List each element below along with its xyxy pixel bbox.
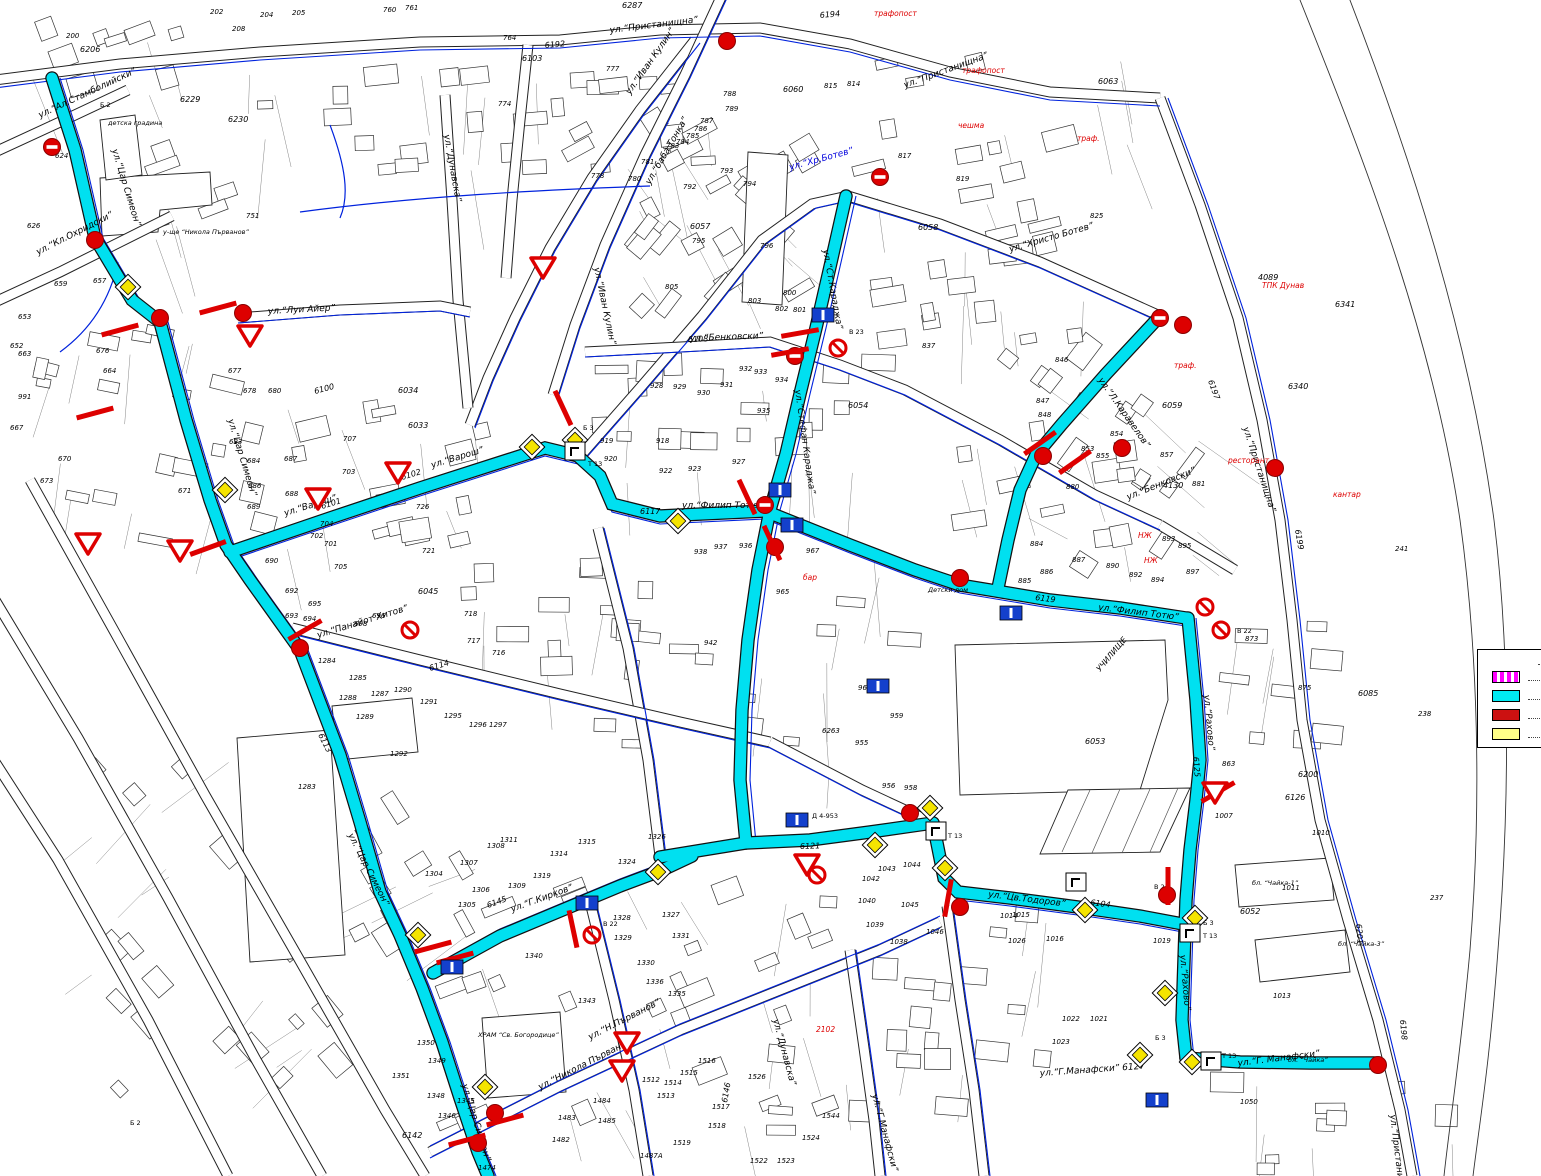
- parcel-number-label: 774: [498, 100, 511, 108]
- building-footprint: [98, 379, 120, 394]
- building-footprint: [755, 952, 780, 971]
- building-footprint: [974, 300, 996, 323]
- parcel-number-label: 794: [743, 180, 756, 188]
- poi-label: бл. “Чайка”: [1288, 1056, 1328, 1064]
- building-footprint: [381, 791, 410, 825]
- building-footprint: [488, 974, 505, 991]
- building-footprint: [1265, 1155, 1279, 1165]
- building-footprint: [935, 1096, 969, 1116]
- legend-item: [1492, 705, 1541, 724]
- sign-code-label: Т 13: [1221, 1052, 1236, 1060]
- building-footprint: [1041, 124, 1078, 152]
- legend-label-dots: [1528, 692, 1541, 700]
- stop-sign-icon: [1114, 440, 1131, 457]
- building-footprint: [1311, 723, 1343, 745]
- parcel-number-label: 934: [775, 376, 788, 384]
- sign-code-label: Т 13: [947, 832, 962, 840]
- parcel-number-label: 778: [591, 172, 605, 180]
- sign-code-label: В 22: [603, 920, 618, 928]
- legend-item: [1492, 667, 1541, 686]
- parcel-number-label: 1484: [593, 1097, 611, 1105]
- sign-code-label: Б 3: [583, 424, 594, 432]
- road-code-label: 4130: [1163, 481, 1183, 490]
- parcel-number-label: 696: [372, 612, 386, 620]
- road-code-label: 6230: [228, 115, 248, 124]
- crossing-sign-icon: [1180, 924, 1200, 942]
- chaika-3-footprint: [1255, 930, 1350, 982]
- road-code-label: 6198: [1398, 1019, 1409, 1040]
- parcel-number-label: 692: [285, 587, 299, 595]
- parcel-number-label: 1019: [1153, 937, 1171, 945]
- parcel-number-label: 796: [760, 242, 774, 250]
- parcel-number-label: 751: [246, 212, 259, 220]
- parcel-number-label: 1324: [618, 858, 636, 866]
- no-entry-sign-icon: [757, 497, 774, 514]
- parcel-number-label: 1043: [878, 865, 896, 873]
- legend-swatch-magenta-dashed: [1492, 671, 1520, 683]
- sign-code-label: Б 2: [130, 1119, 141, 1127]
- building-footprint: [595, 365, 628, 374]
- parcel-number-label: 846: [1055, 356, 1069, 364]
- parcel-number-label: 793: [720, 167, 733, 175]
- parcel-number-label: 965: [776, 588, 790, 596]
- parcel-number-label: 200: [66, 32, 80, 40]
- parcel-number-label: 1336: [646, 978, 664, 986]
- road-code-label: 6060: [783, 85, 803, 94]
- stop-sign-icon: [292, 640, 309, 657]
- poi-label: детска градина: [107, 119, 162, 127]
- parcel-number-label: 919: [600, 437, 614, 445]
- parcel-number-label: 801: [793, 306, 806, 314]
- parcel-number-label: 847: [1036, 397, 1050, 405]
- road-code-label: 6194: [819, 9, 840, 20]
- building-footprint: [296, 415, 331, 442]
- parcel-number-label: 1021: [1090, 1015, 1108, 1023]
- building-footprint: [928, 260, 947, 280]
- parcel-number-label: 703: [342, 468, 355, 476]
- building-footprint: [540, 656, 572, 676]
- parcel-number-label: 1327: [662, 911, 680, 919]
- parcel-number-label: 1351: [392, 1072, 410, 1080]
- building-footprint: [395, 158, 419, 173]
- building-footprint: [93, 489, 118, 505]
- parcel-number-label: 1022: [1062, 1015, 1080, 1023]
- building-footprint: [924, 1032, 939, 1050]
- poi-label: чешма: [958, 121, 985, 130]
- building-footprint: [372, 526, 390, 539]
- building-footprint: [737, 428, 750, 442]
- building-footprint: [1249, 732, 1265, 745]
- road-code-label: 6034: [398, 386, 418, 395]
- building-footprint: [836, 596, 865, 608]
- parcel-number-label: 1522: [750, 1157, 768, 1165]
- parcel-number-label: 671: [178, 487, 191, 495]
- no-entry-sign-icon: [44, 139, 61, 156]
- parcel-number-label: 930: [697, 389, 711, 397]
- parcel-number-label: 780: [628, 175, 642, 183]
- no-entry-sign-icon: [1152, 310, 1169, 327]
- parcel-number-label: 819: [956, 175, 970, 183]
- poi-label: НЖ: [1144, 556, 1159, 565]
- parcel-number-label: 802: [775, 305, 789, 313]
- stop-sign-icon: [152, 310, 169, 327]
- stop-sign-icon: [952, 570, 969, 587]
- building-footprint: [399, 517, 432, 543]
- large-hall-footprint: [237, 730, 345, 962]
- no-stopping-sign-icon: [1197, 599, 1213, 615]
- parcel-number-label: 795: [692, 237, 706, 245]
- one-way-sign-icon: [769, 483, 791, 497]
- parcel-number-label: 1487А: [640, 1152, 663, 1160]
- parcel-number-label: 1345: [457, 1097, 475, 1105]
- building-footprint: [1033, 1050, 1051, 1068]
- legend-swatch-cyan: [1492, 690, 1520, 702]
- parcel-number-label: 884: [1030, 540, 1043, 548]
- building-footprint: [706, 175, 731, 194]
- road-code-label: 6117: [640, 507, 661, 516]
- parcel-number-label: 693: [285, 612, 298, 620]
- building-footprint: [787, 913, 811, 939]
- legend-swatch-red: [1492, 709, 1520, 721]
- building-footprint: [1257, 1163, 1274, 1175]
- building-footprint: [955, 145, 983, 164]
- parcel-number-label: 892: [1129, 571, 1143, 579]
- parcel-number-label: 935: [757, 407, 771, 415]
- building-footprint: [349, 923, 369, 942]
- parcel-number-label: 1007: [1215, 812, 1233, 820]
- building-footprint: [638, 581, 653, 599]
- parcel-number-label: 817: [898, 152, 912, 160]
- stop-sign-icon: [1035, 448, 1052, 465]
- parcel-number-label: 955: [855, 739, 869, 747]
- road-code-label: 6045: [418, 587, 438, 596]
- parcel-number-label: 678: [243, 387, 257, 395]
- parcel-number-label: 777: [606, 65, 620, 73]
- building-footprint: [879, 119, 897, 139]
- priority-road-sign-icon: [1152, 980, 1177, 1005]
- parcel-number-label: 1311: [500, 836, 518, 844]
- parcel-number-label: 825: [1090, 212, 1104, 220]
- parcel-number-label: 705: [334, 563, 348, 571]
- parcel-number-label: 814: [847, 80, 860, 88]
- road-code-label: 6057: [690, 222, 711, 231]
- building-footprint: [1219, 672, 1250, 685]
- road-code-label: 6108: [688, 334, 709, 344]
- parcel-number-label: 1519: [673, 1139, 691, 1147]
- building-footprint: [947, 276, 975, 295]
- building-footprint: [211, 443, 226, 457]
- legend-label-dots: [1528, 730, 1541, 738]
- road-code-label: 6200: [1298, 770, 1318, 779]
- building-footprint: [289, 1014, 305, 1030]
- parcel-number-label: 707: [343, 435, 357, 443]
- building-footprint: [460, 66, 490, 85]
- building-footprint: [241, 422, 263, 444]
- poi-label: бар: [803, 573, 817, 582]
- one-way-sign-icon: [441, 960, 463, 974]
- building-footprint: [1109, 523, 1132, 547]
- parcel-number-label: 890: [1106, 562, 1120, 570]
- poi-label: Детски дом: [927, 586, 968, 594]
- parcel-number-label: 761: [405, 4, 418, 12]
- stop-sign-icon: [902, 805, 919, 822]
- building-footprint: [691, 433, 718, 450]
- parcel-number-label: 1513: [657, 1092, 675, 1100]
- road-code-label: 6054: [848, 401, 868, 410]
- building-footprint: [1307, 621, 1327, 632]
- one-way-sign-icon: [576, 896, 598, 910]
- building-footprint: [957, 445, 973, 462]
- poi-label: траф.: [1174, 361, 1197, 370]
- parcel-number-label: 1306: [472, 886, 490, 894]
- sign-code-label: Т 13: [587, 460, 602, 468]
- building-footprint: [909, 1006, 932, 1029]
- parcel-number-label: 1016: [1046, 935, 1064, 943]
- parcel-number-label: 652: [10, 342, 24, 350]
- city-map-canvas[interactable]: ул.“Ал.Стамболийски”ул.“Кл.Охридски”ул.“…: [0, 0, 1541, 1176]
- building-footprint: [539, 597, 570, 612]
- building-footprint: [333, 86, 348, 104]
- parcel-number-label: 959: [890, 712, 904, 720]
- parcel-number-label: 786: [694, 125, 708, 133]
- stop-sign-icon: [952, 899, 969, 916]
- parcel-number-label: 787: [700, 117, 714, 125]
- road-code-label: 6341: [1335, 300, 1355, 309]
- building-footprint: [920, 302, 935, 321]
- parcel-number-label: 1315: [578, 838, 596, 846]
- water-lines-layer: [0, 0, 1420, 1176]
- parcel-number-label: 683: [229, 438, 242, 446]
- parcel-number-label: 855: [1096, 452, 1110, 460]
- one-way-sign-icon: [1000, 606, 1022, 620]
- parcel-number-label: 659: [54, 280, 68, 288]
- building-footprint: [1435, 1104, 1458, 1126]
- parcel-number-label: 690: [265, 557, 279, 565]
- parcel-number-label: 1523: [777, 1157, 795, 1165]
- building-footprint: [861, 354, 895, 371]
- parcel-number-label: 1544: [822, 1112, 840, 1120]
- building-footprint: [669, 644, 698, 654]
- parcel-number-label: 680: [268, 387, 282, 395]
- parcel-number-label: 1304: [425, 870, 443, 878]
- building-footprint: [35, 16, 58, 41]
- building-footprint: [124, 21, 155, 45]
- building-footprint: [1008, 1004, 1026, 1014]
- building-footprint: [559, 991, 577, 1012]
- road-code-label: 6126: [1285, 793, 1305, 802]
- parcel-number-label: 1038: [890, 938, 908, 946]
- parcel-number-label: 1474: [478, 1164, 496, 1172]
- street-name-label: ул.“Дунавска”: [441, 133, 463, 203]
- one-way-sign-icon: [812, 308, 834, 322]
- building-footprint: [768, 1106, 792, 1116]
- parcel-number-label: 1289: [356, 713, 374, 721]
- signpost-bar-icon: [567, 910, 580, 948]
- give-way-sign-icon: [76, 534, 100, 554]
- signpost-bar-icon: [1166, 867, 1171, 905]
- parcel-number-label: 718: [464, 610, 478, 618]
- parcel-number-label: 238: [1418, 710, 1432, 718]
- parcel-number-label: 815: [824, 82, 838, 90]
- poi-label: НЖ: [1138, 531, 1153, 540]
- parcel-number-label: 956: [882, 782, 896, 790]
- parcel-number-label: 848: [1038, 411, 1052, 419]
- parcel-number-label: 931: [720, 381, 733, 389]
- parcel-number-label: 1292: [390, 750, 408, 758]
- no-entry-sign-icon: [872, 169, 889, 186]
- parcel-number-label: 686: [248, 482, 262, 490]
- sign-code-label: Б 3: [1155, 1034, 1166, 1042]
- poi-label: трафопост: [874, 9, 917, 18]
- one-way-sign-icon: [1146, 1093, 1168, 1107]
- building-footprint: [684, 940, 701, 955]
- parcel-number-label: 716: [492, 649, 506, 657]
- parcel-number-label: 927: [732, 458, 746, 466]
- parcel-number-label: 1295: [444, 712, 462, 720]
- road-code-label: 6197: [1206, 379, 1222, 402]
- building-footprint: [439, 68, 459, 87]
- parcel-number-label: 1015: [1012, 911, 1030, 919]
- poi-label: бл. “Чайка-1”: [1252, 879, 1299, 887]
- crossing-sign-icon: [926, 822, 946, 840]
- building-footprint: [467, 111, 483, 132]
- parcel-number-label: 880: [1066, 483, 1080, 491]
- parcel-number-label: 1039: [866, 921, 884, 929]
- parcel-number-label: 717: [467, 637, 481, 645]
- parcel-number-label: 1343: [578, 997, 596, 1005]
- parcel-number-label: 1517: [712, 1103, 730, 1111]
- building-footprint: [474, 563, 494, 582]
- building-footprint: [1210, 1072, 1244, 1092]
- building-footprint: [355, 136, 374, 151]
- parcel-number-label: 895: [1178, 542, 1192, 550]
- parcel-number-label: 942: [704, 639, 718, 647]
- building-footprint: [887, 631, 921, 647]
- parcel-number-label: 626: [27, 222, 41, 230]
- building-footprint: [454, 910, 475, 937]
- parcel-number-label: 923: [688, 465, 701, 473]
- parcel-number-label: 726: [416, 503, 430, 511]
- road-code-label: 6192: [544, 39, 565, 50]
- parcel-number-label: 886: [1040, 568, 1054, 576]
- building-footprint: [1000, 161, 1025, 183]
- parcel-number-label: 760: [383, 6, 397, 14]
- parcel-number-label: 873: [1245, 635, 1258, 643]
- give-way-sign-icon: [238, 326, 262, 346]
- building-footprint: [817, 624, 836, 636]
- building-footprint: [997, 348, 1018, 369]
- crossing-sign-icon: [1066, 873, 1086, 891]
- building-footprint: [691, 156, 716, 166]
- road-code-label: 6121: [800, 841, 821, 851]
- school-2-footprint: [955, 640, 1168, 795]
- road-code-label: 6199: [1293, 529, 1305, 551]
- building-footprint: [808, 929, 833, 948]
- parcel-number-label: 938: [694, 548, 708, 556]
- parcel-number-label: 1331: [672, 932, 690, 940]
- sign-code-label: Д 4-953: [812, 812, 838, 820]
- parcel-number-label: 764: [503, 34, 516, 42]
- parcel-number-label: 1040: [858, 897, 876, 905]
- parcel-number-label: 1326: [648, 833, 666, 841]
- road-code-label: 6052: [1240, 907, 1260, 916]
- parcel-number-label: 800: [783, 289, 797, 297]
- stop-sign-icon: [1370, 1057, 1387, 1074]
- poi-label: траф.: [1077, 134, 1100, 143]
- building-footprint: [462, 971, 486, 993]
- building-footprint: [1310, 649, 1343, 671]
- building-footprint: [1067, 328, 1083, 344]
- parcel-number-label: 1514: [664, 1079, 682, 1087]
- building-footprint: [594, 718, 616, 732]
- parcel-number-label: 6263: [822, 727, 840, 735]
- road-code-label: 6059: [1162, 401, 1182, 410]
- parcel-number-label: 1516: [698, 1057, 716, 1065]
- parcel-number-label: 936: [739, 542, 753, 550]
- parcel-number-label: 875: [1298, 684, 1312, 692]
- road-code-label: 6053: [1085, 737, 1105, 746]
- parcel-number-label: 928: [650, 382, 664, 390]
- building-footprint: [33, 357, 49, 379]
- parcel-number-label: 1330: [637, 959, 655, 967]
- parcel-number-label: 854: [1110, 430, 1123, 438]
- parcel-number-label: 1349: [428, 1057, 446, 1065]
- parcel-number-label: 881: [1192, 480, 1205, 488]
- signpost-bar-icon: [553, 390, 574, 427]
- sign-code-label: В 23: [849, 328, 864, 336]
- parcel-number-label: 1013: [1273, 992, 1291, 1000]
- poi-label: 2102: [816, 1025, 835, 1034]
- parcel-number-label: 1483: [558, 1114, 576, 1122]
- parcel-number-label: 863: [1222, 760, 1235, 768]
- road-code-label: 6229: [180, 95, 200, 104]
- one-way-sign-icon: [781, 518, 803, 532]
- parcel-number-label: 1485: [598, 1117, 616, 1125]
- building-footprint: [456, 495, 472, 515]
- parcel-number-label: 1305: [458, 901, 476, 909]
- building-footprint: [958, 184, 993, 204]
- road-code-label: 6142: [402, 1131, 422, 1140]
- building-footprint: [142, 966, 174, 999]
- parcel-number-label: 1010: [1312, 829, 1330, 837]
- parcel-number-label: 1284: [318, 657, 336, 665]
- road-code-label: 6058: [918, 223, 938, 232]
- parcel-number-label: 1518: [708, 1122, 726, 1130]
- road-code-label: 6085: [1358, 689, 1378, 698]
- parcel-number-label: 937: [714, 543, 728, 551]
- parcel-number-label: 792: [683, 183, 697, 191]
- map-viewport[interactable]: ул.“Ал.Стамболийски”ул.“Кл.Охридски”ул.“…: [0, 0, 1541, 1176]
- parcel-number-label: 788: [723, 90, 737, 98]
- parcel-number-label: 677: [228, 367, 242, 375]
- poi-label: ТПК Дунав: [1262, 281, 1304, 290]
- road-code-label: 6125: [1191, 756, 1202, 777]
- parcel-number-label: 929: [673, 383, 687, 391]
- one-way-sign-icon: [867, 679, 889, 693]
- parking-lot-hatched: [1040, 788, 1190, 854]
- parcel-number-label: 1026: [1008, 937, 1026, 945]
- parcel-number-label: 991: [18, 393, 31, 401]
- parcel-number-label: 695: [308, 600, 322, 608]
- building-footprint: [695, 653, 713, 665]
- parcel-number-label: 673: [40, 477, 53, 485]
- parcel-number-label: 204: [260, 11, 273, 19]
- parcel-number-label: 918: [656, 437, 670, 445]
- crossing-sign-icon: [565, 442, 585, 460]
- road-code-label: 6146: [720, 1082, 732, 1104]
- parcel-number-label: 1288: [339, 694, 357, 702]
- parcel-number-label: 657: [93, 277, 107, 285]
